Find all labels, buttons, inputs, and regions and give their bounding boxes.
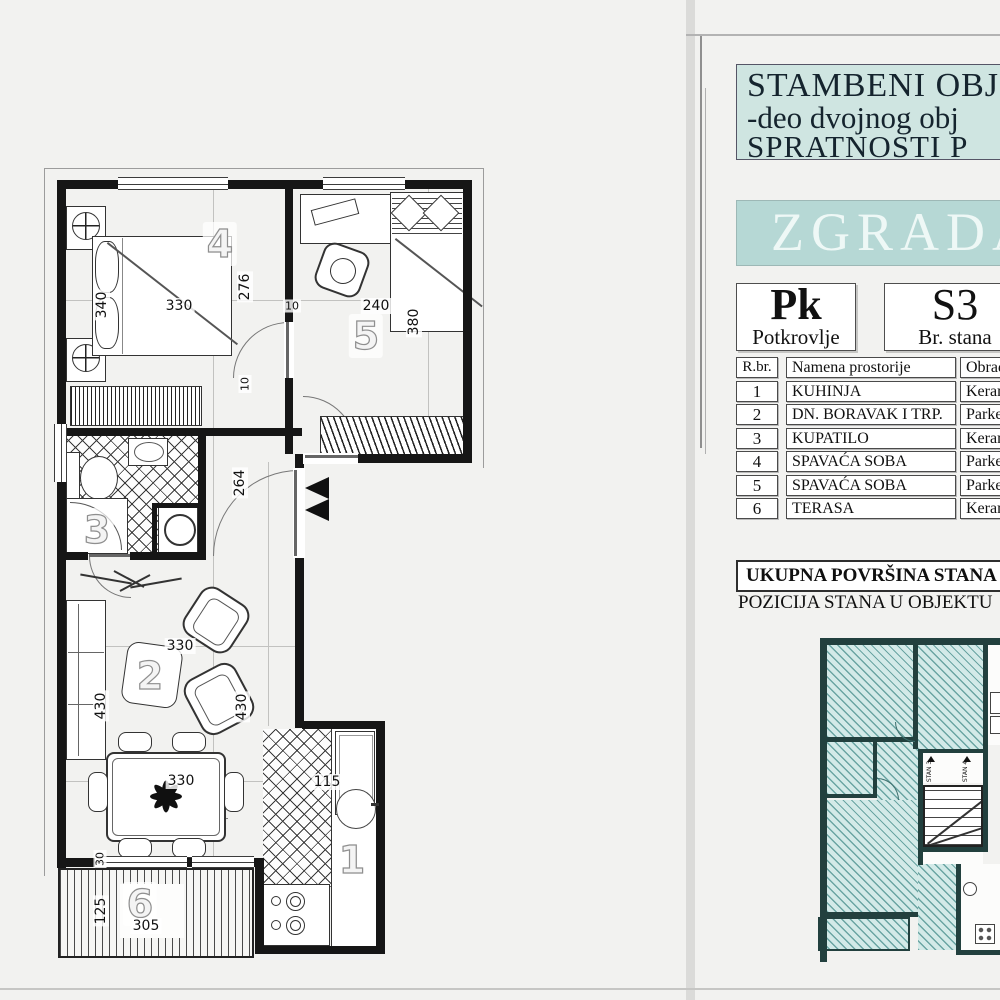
chair: [172, 838, 206, 858]
title-line-3: SPRATNOSTI P: [747, 132, 1000, 162]
room-number: 4: [203, 222, 237, 266]
mini-kitchen: [918, 864, 956, 950]
room-number: 2: [133, 654, 167, 698]
unit-name: Br. stana: [885, 326, 1000, 348]
room5-door-leaf: [305, 455, 358, 458]
mw: [827, 794, 877, 798]
entry-door-arc: [213, 470, 299, 556]
dimension-label: 430: [234, 692, 250, 723]
wall-bath-top: [57, 428, 302, 436]
table-cell-nm: TERASA: [786, 498, 956, 519]
dimension-label: 125: [93, 896, 109, 927]
chair: [172, 732, 206, 752]
decor: [95, 862, 187, 863]
dimension-label: 430: [93, 691, 109, 722]
header-num: R.br.: [736, 357, 778, 378]
mw: [918, 847, 988, 852]
table-cell-num: 4: [736, 451, 778, 472]
table-cell-fin: Parket: [960, 404, 1000, 425]
entrance-arrow: [305, 499, 329, 521]
decor: [192, 862, 254, 863]
w: [152, 503, 157, 555]
table-cell-nm: DN. BORAVAK I TRP.: [786, 404, 956, 425]
table-cell-num: 3: [736, 428, 778, 449]
mw: [918, 749, 983, 753]
terrace-window: [192, 856, 254, 868]
unit-code-box: S3 Br. stana: [884, 283, 1000, 351]
mwhite: [923, 852, 983, 864]
wall-kitchen-bottom: [255, 946, 384, 954]
table-cell-fin: Keram: [960, 498, 1000, 519]
mini-staircase: [923, 785, 983, 847]
abs: [990, 692, 1000, 714]
w: [295, 556, 304, 728]
table-cell-fin: Keram: [960, 428, 1000, 449]
wall-left: [57, 180, 66, 868]
sdiag: [927, 800, 983, 844]
table-cell-nm: SPAVAĆA SOBA: [786, 475, 956, 496]
fold-line-2: [705, 88, 706, 454]
toilet-bowl: [80, 456, 118, 500]
mw: [956, 950, 1000, 955]
abs: [271, 920, 281, 930]
position-plan: STAN 3 STAN 4: [815, 632, 1000, 988]
stan3-label: STAN 3: [926, 761, 933, 782]
unit-code: S3: [885, 284, 1000, 326]
window: [323, 177, 405, 190]
mini-bathroom: [827, 742, 873, 794]
stan4-label: STAN 4: [962, 761, 969, 782]
table-cell-num: 6: [736, 498, 778, 519]
dimension-label: 10: [283, 300, 301, 313]
mw: [983, 645, 988, 852]
kitchen-sink: [336, 789, 376, 829]
dimension-label: 240: [361, 298, 392, 314]
abs: [164, 514, 196, 546]
header-finish: Obrada: [960, 357, 1000, 378]
abs: [963, 882, 977, 896]
chair: [224, 772, 244, 812]
dimension-label: 330: [165, 638, 196, 654]
window: [118, 177, 228, 190]
terrace-door: [95, 856, 187, 868]
wall-kitchen-top: [302, 721, 384, 729]
project-title-box: STAMBENI OBJ -deo dvojnog obj SPRATNOSTI…: [736, 64, 1000, 160]
floor-code-box: Pk Potkrovlje: [736, 283, 856, 351]
dimension-label: 30: [94, 850, 107, 868]
floor-plan: 3303402761010240380264330430430330115301…: [0, 0, 700, 1000]
dimension-label: 330: [166, 773, 197, 789]
room-number: 1: [335, 838, 369, 882]
dimension-label: 340: [94, 290, 110, 321]
thin: [483, 168, 484, 468]
dimension-label: 330: [164, 298, 195, 314]
chair: [88, 772, 108, 812]
title-line-2: -deo dvojnog obj: [747, 103, 1000, 132]
table-cell-num: 1: [736, 381, 778, 402]
chair: [118, 732, 152, 752]
header-name: Namena prostorije: [786, 357, 956, 378]
wall-kitchen-right: [376, 721, 385, 954]
chair: [118, 838, 152, 858]
building-banner: ZGRADA: [736, 200, 1000, 266]
decor: [323, 184, 405, 185]
table-cell-fin: Parket: [960, 475, 1000, 496]
abs: [290, 896, 301, 907]
mw: [820, 638, 827, 962]
page-top-edge: [686, 34, 1000, 36]
table-cell-nm: KUHINJA: [786, 381, 956, 402]
table-cell-num: 5: [736, 475, 778, 496]
table-cell-fin: Keram: [960, 381, 1000, 402]
mini-bedroom-2: [918, 645, 983, 749]
mini-terrace: [818, 917, 910, 951]
room-number: 5: [349, 314, 383, 358]
position-label: POZICIJA STANA U OBJEKTU: [738, 592, 992, 614]
wall-right-room5: [463, 180, 472, 463]
table-cell-nm: KUPATILO: [786, 428, 956, 449]
w: [130, 552, 206, 560]
total-area-box: UKUPNA POVRŠINA STANA: [736, 560, 1000, 592]
kitchen-tiles: [263, 729, 331, 887]
dimension-label: 115: [312, 774, 343, 790]
room4-door-arc: [233, 322, 289, 378]
entry-door-leaf: [294, 470, 297, 556]
mw: [827, 912, 918, 917]
dimension-label: 10: [239, 375, 252, 393]
building-label: ZGRADA: [771, 202, 1000, 262]
abs: [975, 924, 995, 944]
mw: [956, 864, 961, 954]
table-cell-nm: SPAVAĆA SOBA: [786, 451, 956, 472]
w: [152, 503, 204, 508]
floor-name: Potkrovlje: [737, 326, 855, 348]
wall-terrace-right: [255, 858, 264, 954]
decor: [61, 424, 62, 482]
wardrobe: [70, 386, 202, 426]
abs: [78, 604, 79, 756]
abs: [68, 652, 104, 653]
mw: [820, 638, 1000, 645]
dimension-label: 264: [232, 468, 248, 499]
wall-bath-right: [198, 436, 206, 560]
table-cell-num: 2: [736, 404, 778, 425]
room4-door-leaf: [286, 322, 289, 378]
bath-door-leaf: [89, 554, 130, 557]
wall-partition-45b: [285, 378, 293, 454]
floor-code: Pk: [737, 284, 855, 326]
dimension-label: 305: [131, 918, 162, 934]
w: [57, 552, 88, 560]
wardrobe: [320, 416, 470, 456]
mini-living: [827, 800, 918, 912]
abs: [371, 803, 379, 806]
dimension-label: 276: [237, 272, 253, 303]
room-number: 3: [80, 508, 114, 552]
table-cell-fin: Parket: [960, 451, 1000, 472]
abs: [134, 442, 164, 462]
sofa: [66, 600, 106, 760]
scanned-floor-plan-sheet: { "panel": { "title_line1": "STAMBENI OB…: [0, 0, 1000, 1000]
thin: [44, 168, 484, 169]
abs: [990, 716, 1000, 734]
decor: [118, 184, 228, 185]
fold-line: [700, 36, 702, 448]
title-line-1: STAMBENI OBJ: [747, 69, 1000, 103]
thin: [44, 168, 45, 876]
abs: [290, 920, 301, 931]
abs: [271, 896, 281, 906]
total-area-label: UKUPNA POVRŠINA STANA: [746, 565, 997, 586]
entrance-arrow: [305, 477, 329, 499]
dimension-label: 380: [406, 307, 422, 338]
toilet-tank: [66, 452, 80, 500]
bathroom-window: [54, 424, 67, 482]
